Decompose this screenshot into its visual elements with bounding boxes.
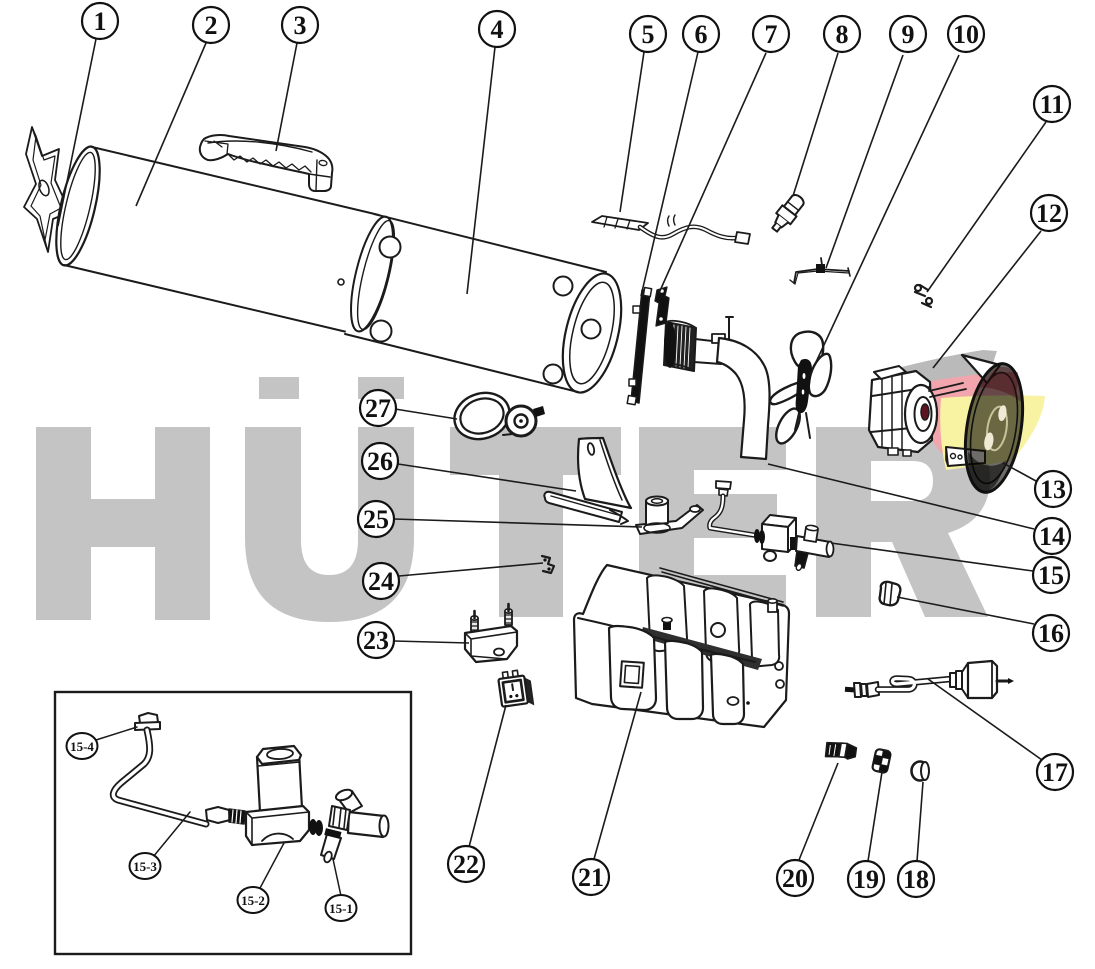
svg-text:14: 14 [1039, 522, 1065, 551]
svg-text:25: 25 [363, 505, 389, 534]
svg-text:1: 1 [94, 7, 107, 36]
svg-text:9: 9 [902, 20, 915, 49]
svg-text:26: 26 [367, 447, 393, 476]
svg-text:17: 17 [1042, 758, 1068, 787]
svg-text:22: 22 [453, 850, 479, 879]
svg-text:5: 5 [642, 20, 655, 49]
svg-text:15: 15 [1038, 561, 1064, 590]
svg-text:10: 10 [953, 20, 979, 49]
svg-text:15-1: 15-1 [329, 901, 353, 916]
svg-text:7: 7 [765, 20, 778, 49]
svg-text:8: 8 [836, 20, 849, 49]
svg-text:15-2: 15-2 [241, 893, 265, 908]
svg-text:27: 27 [365, 394, 391, 423]
svg-text:16: 16 [1038, 619, 1064, 648]
svg-text:15-4: 15-4 [70, 739, 94, 754]
svg-text:12: 12 [1036, 199, 1062, 228]
svg-text:3: 3 [294, 11, 307, 40]
svg-text:23: 23 [363, 626, 389, 655]
svg-text:11: 11 [1040, 90, 1065, 119]
svg-text:24: 24 [368, 567, 394, 596]
svg-text:19: 19 [853, 865, 879, 894]
svg-text:18: 18 [903, 865, 929, 894]
svg-text:13: 13 [1040, 475, 1066, 504]
svg-text:4: 4 [491, 15, 504, 44]
svg-text:6: 6 [695, 20, 708, 49]
svg-text:15-3: 15-3 [133, 859, 157, 874]
svg-text:21: 21 [578, 863, 604, 892]
svg-text:20: 20 [782, 864, 808, 893]
svg-text:2: 2 [205, 11, 218, 40]
